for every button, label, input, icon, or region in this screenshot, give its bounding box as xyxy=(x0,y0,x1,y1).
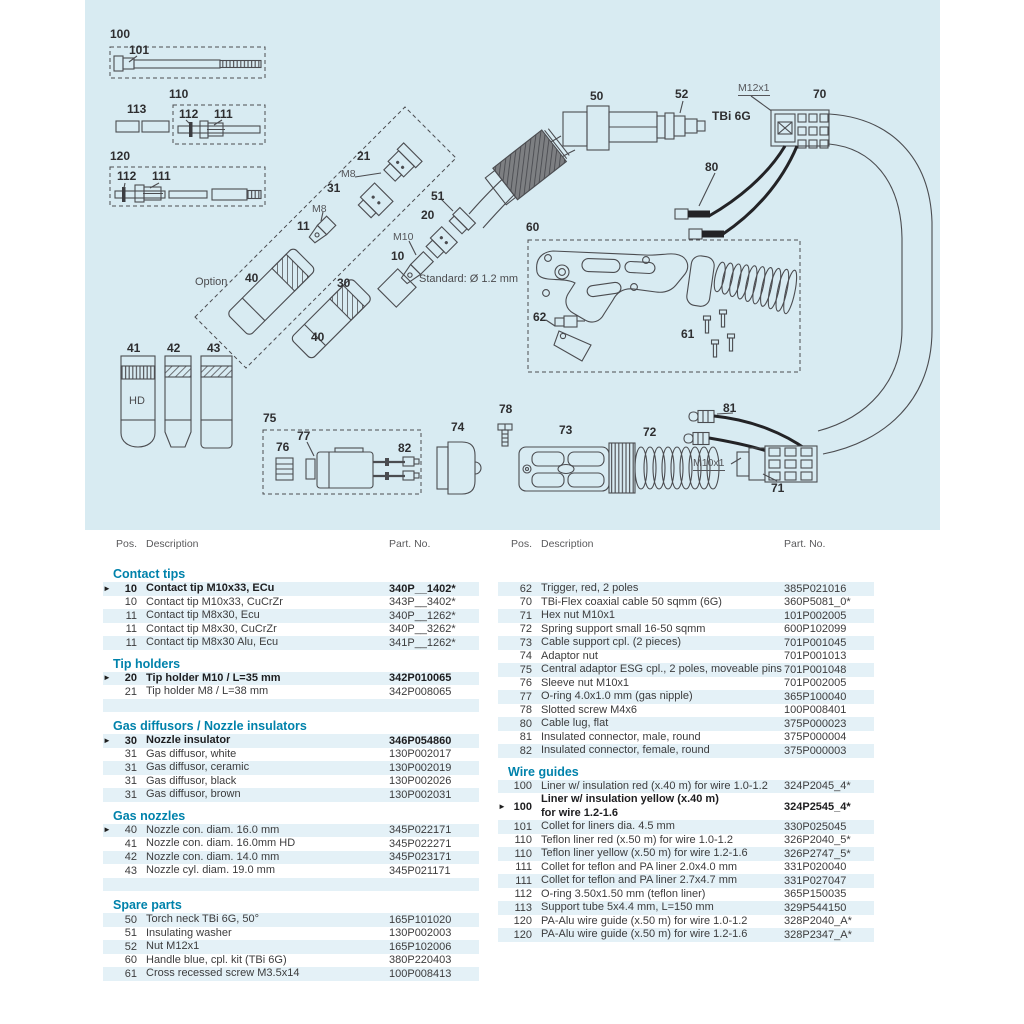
row-desc: Teflon liner yellow (x.50 m) for wire 1.… xyxy=(532,847,784,860)
part-label: 40 xyxy=(245,272,258,284)
part-label: 112 xyxy=(117,170,136,182)
row-part: 130P002003 xyxy=(389,927,479,939)
part-label: 71 xyxy=(771,482,784,494)
row-pos: 62 xyxy=(508,583,532,595)
row-desc: Contact tip M8x30, Ecu xyxy=(137,609,389,622)
row-pos: 111 xyxy=(508,875,532,887)
row-desc: Gas diffusor, black xyxy=(137,775,389,788)
table-row: 11Contact tip M8x30, Ecu340P__1262* xyxy=(103,609,479,623)
row-part: 375P000004 xyxy=(784,731,874,743)
table-row: ►10Contact tip M10x33, ECu340P__1402* xyxy=(103,582,479,596)
row-part: 331P020040 xyxy=(784,861,874,873)
section-title: Gas nozzles xyxy=(113,802,479,824)
part-label: 50 xyxy=(590,90,603,102)
section-title: Contact tips xyxy=(113,560,479,582)
row-part: 385P021016 xyxy=(784,583,874,595)
part-label: 42 xyxy=(167,342,180,354)
row-part: 165P102006 xyxy=(389,941,479,953)
table-row: 31Gas diffusor, white130P002017 xyxy=(103,748,479,762)
part-label: 113 xyxy=(127,103,146,115)
row-pos: 11 xyxy=(113,623,137,635)
table-row: ►30Nozzle insulator346P054860 xyxy=(103,734,479,748)
row-desc: Trigger, red, 2 poles xyxy=(532,582,784,595)
screws-61-drawing xyxy=(704,310,735,357)
row-part: 331P027047 xyxy=(784,875,874,887)
section-title: Wire guides xyxy=(508,758,874,780)
row-pos: 42 xyxy=(113,851,137,863)
table-header: Pos.DescriptionPart. No. xyxy=(103,535,479,560)
row-part: 328P2040_A* xyxy=(784,915,874,927)
row-desc: Liner w/ insulation yellow (x.40 m)for w… xyxy=(532,793,784,819)
table-row: 74Adaptor nut701P001013 xyxy=(498,650,874,664)
table-row: 76Sleeve nut M10x1701P002005 xyxy=(498,677,874,691)
row-desc: O-ring 3.50x1.50 mm (teflon liner) xyxy=(532,888,784,901)
row-desc: Sleeve nut M10x1 xyxy=(532,677,784,690)
row-pos: 78 xyxy=(508,704,532,716)
row-pos: 40 xyxy=(113,824,137,836)
table-row: 71Hex nut M10x1101P002005 xyxy=(498,609,874,623)
row-desc: Adaptor nut xyxy=(532,650,784,663)
row-pos: 110 xyxy=(508,834,532,846)
table-row: 73Cable support cpl. (2 pieces)701P00104… xyxy=(498,636,874,650)
table-row: 78Slotted screw M4x6100P008401 xyxy=(498,704,874,718)
row-pos: 11 xyxy=(113,637,137,649)
table-row: 82Insulated connector, female, round375P… xyxy=(498,744,874,758)
row-desc: Liner w/ insulation red (x.40 m) for wir… xyxy=(532,780,784,793)
row-desc: Nut M12x1 xyxy=(137,940,389,953)
row-desc: Hex nut M10x1 xyxy=(532,609,784,622)
row-desc: Nozzle con. diam. 14.0 mm xyxy=(137,851,389,864)
row-part: 600P102099 xyxy=(784,623,874,635)
gas-nozzle-40-drawing xyxy=(290,278,372,360)
col-header-desc: Description xyxy=(532,538,784,551)
row-part: 375P000023 xyxy=(784,718,874,730)
torch-exploded-diagram xyxy=(85,0,940,530)
part-label: 31 xyxy=(327,182,340,194)
table-row: 75Central adaptor ESG cpl., 2 poles, mov… xyxy=(498,663,874,677)
col-header-pos: Pos. xyxy=(508,538,532,550)
tip-holder-21-drawing xyxy=(380,143,422,185)
part-label: 20 xyxy=(421,209,434,221)
gas-diffusor-31-drawing xyxy=(355,183,392,220)
part-label: 120 xyxy=(110,150,130,162)
section-spacer xyxy=(498,560,874,582)
parts-table-left: Pos.DescriptionPart. No.Contact tips►10C… xyxy=(103,535,479,981)
parts-table-right: Pos.DescriptionPart. No.62Trigger, red, … xyxy=(498,535,874,942)
row-desc: O-ring 4.0x1.0 mm (gas nipple) xyxy=(532,690,784,703)
row-part: 340P__1402* xyxy=(389,583,479,595)
row-desc: Nozzle insulator xyxy=(137,734,389,747)
part-label: 51 xyxy=(431,190,444,202)
part-label: 100 xyxy=(110,28,130,40)
row-pos: 51 xyxy=(113,927,137,939)
row-desc: Cable lug, flat xyxy=(532,717,784,730)
row-part: 701P002005 xyxy=(784,677,874,689)
part-label: 11 xyxy=(297,220,310,232)
row-part: 130P002031 xyxy=(389,789,479,801)
row-pos: 30 xyxy=(113,735,137,747)
part-label: 52 xyxy=(675,88,688,100)
row-pos: 100 xyxy=(508,801,532,813)
row-desc: Teflon liner red (x.50 m) for wire 1.0-1… xyxy=(532,834,784,847)
row-desc: Collet for liners dia. 4.5 mm xyxy=(532,820,784,833)
row-desc: Gas diffusor, brown xyxy=(137,788,389,801)
part-label: 76 xyxy=(276,441,289,453)
row-desc: Nozzle cyl. diam. 19.0 mm xyxy=(137,864,389,877)
row-desc: Gas diffusor, ceramic xyxy=(137,761,389,774)
row-part: 342P010065 xyxy=(389,672,479,684)
row-desc: PA-Alu wire guide (x.50 m) for wire 1.0-… xyxy=(532,915,784,928)
table-row: 10Contact tip M10x33, CuCrZr343P__3402* xyxy=(103,596,479,610)
part-label: M10 xyxy=(393,232,413,243)
support-tube-113-drawing xyxy=(116,121,169,132)
row-pos: 120 xyxy=(508,929,532,941)
row-part: 342P008065 xyxy=(389,686,479,698)
part-label: 111 xyxy=(214,108,233,120)
table-row: 42Nozzle con. diam. 14.0 mm345P023171 xyxy=(103,851,479,865)
table-row: 21Tip holder M8 / L=38 mm342P008065 xyxy=(103,685,479,699)
row-pos: 60 xyxy=(113,954,137,966)
row-pos: 31 xyxy=(113,775,137,787)
table-row: 41Nozzle con. diam. 16.0mm HD345P022271 xyxy=(103,837,479,851)
table-row: 111Collet for teflon and PA liner 2.7x4.… xyxy=(498,874,874,888)
row-part: 330P025045 xyxy=(784,821,874,833)
cable-lug-80-drawing xyxy=(675,146,797,239)
part-label: 41 xyxy=(127,342,140,354)
row-desc: Contact tip M10x33, ECu xyxy=(137,582,389,595)
part-label: M10x1 xyxy=(693,458,725,471)
row-part: 365P150035 xyxy=(784,888,874,900)
part-label: 72 xyxy=(643,426,656,438)
part-label: 80 xyxy=(705,161,718,173)
table-row: 70TBi-Flex coaxial cable 50 sqmm (6G)360… xyxy=(498,596,874,610)
part-label: 110 xyxy=(169,88,188,100)
part-label: 10 xyxy=(391,250,404,262)
row-part: 341P__1262* xyxy=(389,637,479,649)
table-row: ►100Liner w/ insulation yellow (x.40 m)f… xyxy=(498,793,874,820)
row-desc: Insulated connector, male, round xyxy=(532,731,784,744)
col-header-pos: Pos. xyxy=(113,538,137,550)
table-row: 120PA-Alu wire guide (x.50 m) for wire 1… xyxy=(498,915,874,929)
table-row: 60Handle blue, cpl. kit (TBi 6G)380P2204… xyxy=(103,954,479,968)
table-row: 120PA-Alu wire guide (x.50 m) for wire 1… xyxy=(498,928,874,942)
row-part: 329P544150 xyxy=(784,902,874,914)
row-desc: Insulated connector, female, round xyxy=(532,744,784,757)
row-desc: Gas diffusor, white xyxy=(137,748,389,761)
part-label: 60 xyxy=(526,221,539,233)
row-empty xyxy=(113,699,479,712)
part-label: 74 xyxy=(451,421,464,433)
row-part: 380P220403 xyxy=(389,954,479,966)
part-label: Standard: Ø 1.2 mm xyxy=(419,274,518,285)
part-label: 77 xyxy=(297,430,310,442)
row-pos: 82 xyxy=(508,745,532,757)
row-desc: PA-Alu wire guide (x.50 m) for wire 1.2-… xyxy=(532,928,784,941)
part-label: Option xyxy=(195,277,227,288)
row-desc: Central adaptor ESG cpl., 2 poles, movea… xyxy=(532,663,784,676)
table-row: 72Spring support small 16-50 sqmm600P102… xyxy=(498,623,874,637)
row-desc: Tip holder M8 / L=38 mm xyxy=(137,685,389,698)
part-label: HD xyxy=(129,396,145,407)
table-row xyxy=(103,878,479,892)
row-arrow-marker: ► xyxy=(103,674,113,682)
row-part: 324P2545_4* xyxy=(784,801,874,813)
table-row: 31Gas diffusor, black130P002026 xyxy=(103,775,479,789)
row-desc: Nozzle con. diam. 16.0 mm xyxy=(137,824,389,837)
section-title: Gas diffusors / Nozzle insulators xyxy=(113,712,479,734)
table-row: 11Contact tip M8x30 Alu, Ecu341P__1262* xyxy=(103,636,479,650)
part-label: 75 xyxy=(263,412,276,424)
handle-kit-60-drawing xyxy=(528,240,800,372)
row-pos: 70 xyxy=(508,596,532,608)
row-pos: 80 xyxy=(508,718,532,730)
row-part: 701P001048 xyxy=(784,664,874,676)
row-desc: Contact tip M8x30, CuCrZr xyxy=(137,623,389,636)
row-part: 100P008413 xyxy=(389,968,479,980)
col-header-desc: Description xyxy=(137,538,389,551)
row-pos: 73 xyxy=(508,637,532,649)
row-pos: 74 xyxy=(508,650,532,662)
section-title: Tip holders xyxy=(113,650,479,672)
row-pos: 11 xyxy=(113,610,137,622)
part-label: M8 xyxy=(312,204,327,215)
table-row: 80Cable lug, flat375P000023 xyxy=(498,717,874,731)
row-part: 101P002005 xyxy=(784,610,874,622)
row-desc: Contact tip M8x30 Alu, Ecu xyxy=(137,636,389,649)
row-pos: 110 xyxy=(508,848,532,860)
table-row: 11Contact tip M8x30, CuCrZr340P__3262* xyxy=(103,623,479,637)
row-pos: 81 xyxy=(508,731,532,743)
row-empty xyxy=(113,878,479,891)
row-part: 326P2747_5* xyxy=(784,848,874,860)
row-part: 130P002017 xyxy=(389,748,479,760)
row-part: 340P__1262* xyxy=(389,610,479,622)
table-row: 81Insulated connector, male, round375P00… xyxy=(498,731,874,745)
col-header-part: Part. No. xyxy=(784,538,874,550)
row-desc: Torch neck TBi 6G, 50° xyxy=(137,913,389,926)
table-row: 110Teflon liner yellow (x.50 m) for wire… xyxy=(498,847,874,861)
row-arrow-marker: ► xyxy=(103,585,113,593)
part-label: 82 xyxy=(398,442,411,454)
row-pos: 43 xyxy=(113,865,137,877)
row-pos: 50 xyxy=(113,914,137,926)
diagram-panel: 10010111311011211112011211121M831M811Opt… xyxy=(85,0,940,530)
row-part: 346P054860 xyxy=(389,735,479,747)
row-desc: Nozzle con. diam. 16.0mm HD xyxy=(137,837,389,850)
row-part: 345P022271 xyxy=(389,838,479,850)
row-part: 345P022171 xyxy=(389,824,479,836)
row-pos: 31 xyxy=(113,762,137,774)
gas-nozzle-40-option-drawing xyxy=(227,247,316,336)
row-pos: 75 xyxy=(508,664,532,676)
table-row: 100Liner w/ insulation red (x.40 m) for … xyxy=(498,780,874,794)
row-pos: 112 xyxy=(508,888,532,900)
row-desc-line2: for wire 1.2-1.6 xyxy=(541,807,618,819)
row-pos: 113 xyxy=(508,902,532,914)
section-title: Spare parts xyxy=(113,891,479,913)
row-arrow-marker: ► xyxy=(498,803,508,811)
part-label: 112 xyxy=(179,108,198,120)
row-part: 365P100040 xyxy=(784,691,874,703)
table-header: Pos.DescriptionPart. No. xyxy=(498,535,874,560)
row-pos: 20 xyxy=(113,672,137,684)
part-label: 70 xyxy=(813,88,826,100)
part-label: 62 xyxy=(533,311,546,323)
row-pos: 111 xyxy=(508,861,532,873)
row-pos: 52 xyxy=(113,941,137,953)
table-row: 52Nut M12x1165P102006 xyxy=(103,940,479,954)
part-label: 43 xyxy=(207,342,220,354)
row-pos: 10 xyxy=(113,596,137,608)
row-pos: 120 xyxy=(508,915,532,927)
row-part: 340P__3262* xyxy=(389,623,479,635)
table-row: 101Collet for liners dia. 4.5 mm330P0250… xyxy=(498,820,874,834)
table-row: 51Insulating washer130P002003 xyxy=(103,927,479,941)
row-desc-line1: Liner w/ insulation yellow (x.40 m) xyxy=(541,793,719,805)
table-row: 62Trigger, red, 2 poles385P021016 xyxy=(498,582,874,596)
cable-support-73-drawing xyxy=(519,443,635,493)
row-desc: Spring support small 16-50 sqmm xyxy=(532,623,784,636)
table-row: 110Teflon liner red (x.50 m) for wire 1.… xyxy=(498,834,874,848)
row-part: 100P008401 xyxy=(784,704,874,716)
row-desc: Support tube 5x4.4 mm, L=150 mm xyxy=(532,901,784,914)
row-desc: Tip holder M10 / L=35 mm xyxy=(137,672,389,685)
row-pos: 41 xyxy=(113,838,137,850)
slotted-screw-78-drawing xyxy=(498,424,512,446)
row-desc: Insulating washer xyxy=(137,927,389,940)
table-row: 111Collet for teflon and PA liner 2.0x4.… xyxy=(498,861,874,875)
row-part: 345P021171 xyxy=(389,865,479,877)
row-arrow-marker: ► xyxy=(103,737,113,745)
row-desc: Cable support cpl. (2 pieces) xyxy=(532,636,784,649)
table-row: 61Cross recessed screw M3.5x14100P008413 xyxy=(103,967,479,981)
adaptor-nut-74-drawing xyxy=(437,442,481,494)
hex-nut-71-drawing xyxy=(731,446,817,482)
row-pos: 21 xyxy=(113,686,137,698)
row-pos: 61 xyxy=(113,968,137,980)
part-label: 101 xyxy=(129,44,149,56)
row-pos: 76 xyxy=(508,677,532,689)
row-desc: Handle blue, cpl. kit (TBi 6G) xyxy=(137,954,389,967)
row-part: 345P023171 xyxy=(389,851,479,863)
part-label: 111 xyxy=(152,170,171,182)
tip-holder-20-drawing xyxy=(424,227,457,260)
row-pos: 72 xyxy=(508,623,532,635)
table-row: 50Torch neck TBi 6G, 50°165P101020 xyxy=(103,913,479,927)
row-desc: Slotted screw M4x6 xyxy=(532,704,784,717)
row-part: 701P001013 xyxy=(784,650,874,662)
row-part: 701P001045 xyxy=(784,637,874,649)
part-label: 78 xyxy=(499,403,512,415)
table-row: 31Gas diffusor, ceramic130P002019 xyxy=(103,761,479,775)
col-header-part: Part. No. xyxy=(389,538,479,550)
part-label: 61 xyxy=(681,328,694,340)
row-pos: 31 xyxy=(113,789,137,801)
row-pos: 100 xyxy=(508,780,532,792)
row-part: 328P2347_A* xyxy=(784,929,874,941)
table-row xyxy=(103,699,479,713)
row-pos: 10 xyxy=(113,583,137,595)
table-row: 112O-ring 3.50x1.50 mm (teflon liner)365… xyxy=(498,888,874,902)
row-pos: 31 xyxy=(113,748,137,760)
row-part: 165P101020 xyxy=(389,914,479,926)
coaxial-cable-70-drawing xyxy=(751,96,932,454)
row-part: 343P__3402* xyxy=(389,596,479,608)
row-desc: Contact tip M10x33, CuCrZr xyxy=(137,596,389,609)
row-pos: 77 xyxy=(508,691,532,703)
row-part: 375P000003 xyxy=(784,745,874,757)
row-desc: Collet for teflon and PA liner 2.0x4.0 m… xyxy=(532,861,784,874)
table-row: 31Gas diffusor, brown130P002031 xyxy=(103,788,479,802)
part-label: TBi 6G xyxy=(712,110,751,122)
row-part: 360P5081_0* xyxy=(784,596,874,608)
torch-neck-50-drawing xyxy=(469,101,705,228)
part-label: M12x1 xyxy=(738,83,770,96)
row-pos: 101 xyxy=(508,821,532,833)
row-desc: Collet for teflon and PA liner 2.7x4.7 m… xyxy=(532,874,784,887)
table-row: ►40Nozzle con. diam. 16.0 mm345P022171 xyxy=(103,824,479,838)
row-desc: Cross recessed screw M3.5x14 xyxy=(137,967,389,980)
table-row: 113Support tube 5x4.4 mm, L=150 mm329P54… xyxy=(498,901,874,915)
catalog-page: 10010111311011211112011211121M831M811Opt… xyxy=(0,0,1024,1024)
table-row: 77O-ring 4.0x1.0 mm (gas nipple)365P1000… xyxy=(498,690,874,704)
table-row: 43Nozzle cyl. diam. 19.0 mm345P021171 xyxy=(103,864,479,878)
part-label: 40 xyxy=(311,331,324,343)
row-part: 326P2040_5* xyxy=(784,834,874,846)
nozzle-insulator-30-drawing xyxy=(378,269,416,307)
part-label: 73 xyxy=(559,424,572,436)
part-label: 30 xyxy=(337,277,350,289)
part-label: 81 xyxy=(723,402,736,414)
row-arrow-marker: ► xyxy=(103,826,113,834)
part-label: M8 xyxy=(341,169,356,180)
row-part: 130P002019 xyxy=(389,762,479,774)
trigger-62-drawing xyxy=(546,316,591,361)
row-part: 324P2045_4* xyxy=(784,780,874,792)
row-part: 130P002026 xyxy=(389,775,479,787)
row-desc: TBi-Flex coaxial cable 50 sqmm (6G) xyxy=(532,596,784,609)
option-box xyxy=(195,107,456,368)
row-pos: 71 xyxy=(508,610,532,622)
table-row: ►20Tip holder M10 / L=35 mm342P010065 xyxy=(103,672,479,686)
part-label: 21 xyxy=(357,150,370,162)
